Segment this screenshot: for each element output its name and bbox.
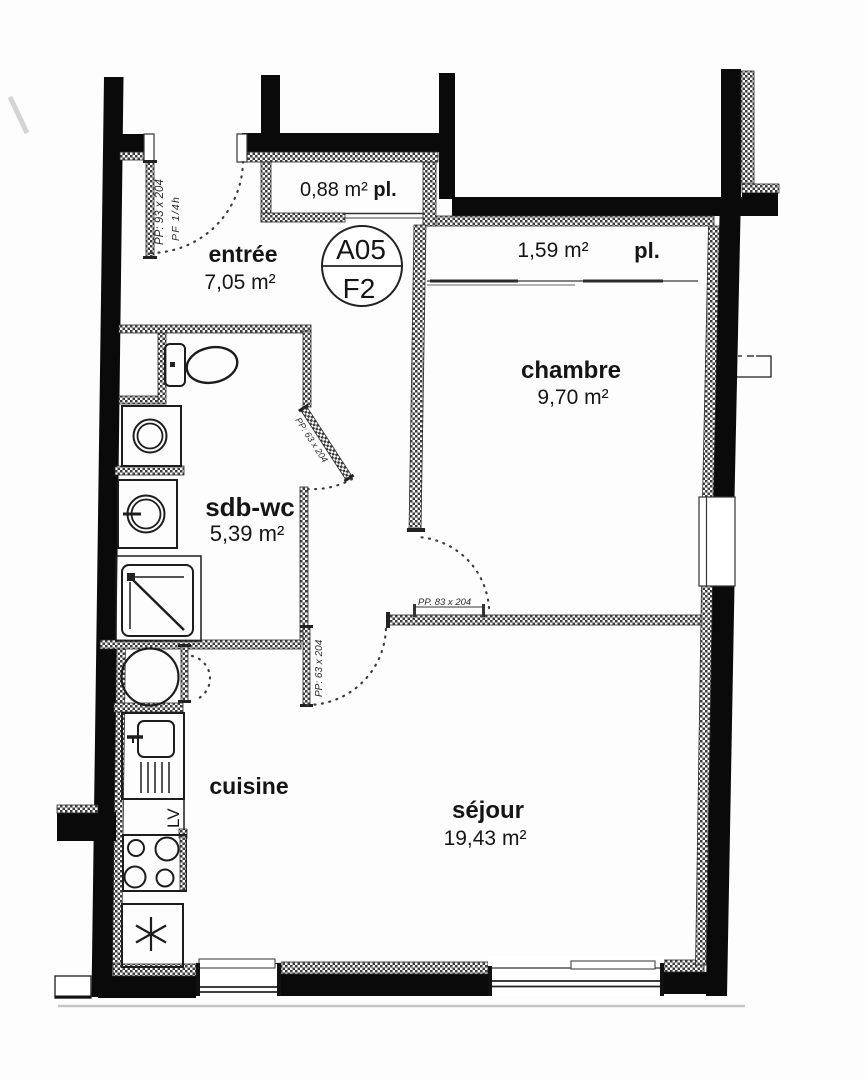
svg-text:19,43 m²: 19,43 m²	[444, 827, 527, 850]
svg-text:chambre: chambre	[521, 357, 621, 384]
svg-text:1,59 m²: 1,59 m²	[517, 239, 588, 262]
svg-text:pl.: pl.	[634, 238, 660, 263]
svg-text:7,05 m²: 7,05 m²	[204, 271, 275, 294]
svg-text:A05: A05	[336, 234, 386, 265]
svg-text:PP. 83 x 204: PP. 83 x 204	[418, 597, 471, 608]
svg-text:5,39 m²: 5,39 m²	[210, 521, 285, 546]
svg-text:9,70 m²: 9,70 m²	[537, 386, 608, 409]
svg-text:séjour: séjour	[452, 797, 524, 824]
svg-text:PF 1/4h: PF 1/4h	[170, 196, 182, 241]
svg-text:PP: 93 x 204: PP: 93 x 204	[154, 179, 166, 245]
svg-text:0,88 m² pl.: 0,88 m² pl.	[300, 179, 397, 201]
svg-text:entrée: entrée	[208, 241, 277, 267]
svg-text:F2: F2	[343, 273, 376, 304]
svg-text:cuisine: cuisine	[209, 773, 288, 799]
svg-text:LV: LV	[164, 808, 183, 828]
svg-text:sdb-wc: sdb-wc	[205, 492, 295, 522]
svg-text:PP: 63 x 204: PP: 63 x 204	[314, 639, 325, 697]
